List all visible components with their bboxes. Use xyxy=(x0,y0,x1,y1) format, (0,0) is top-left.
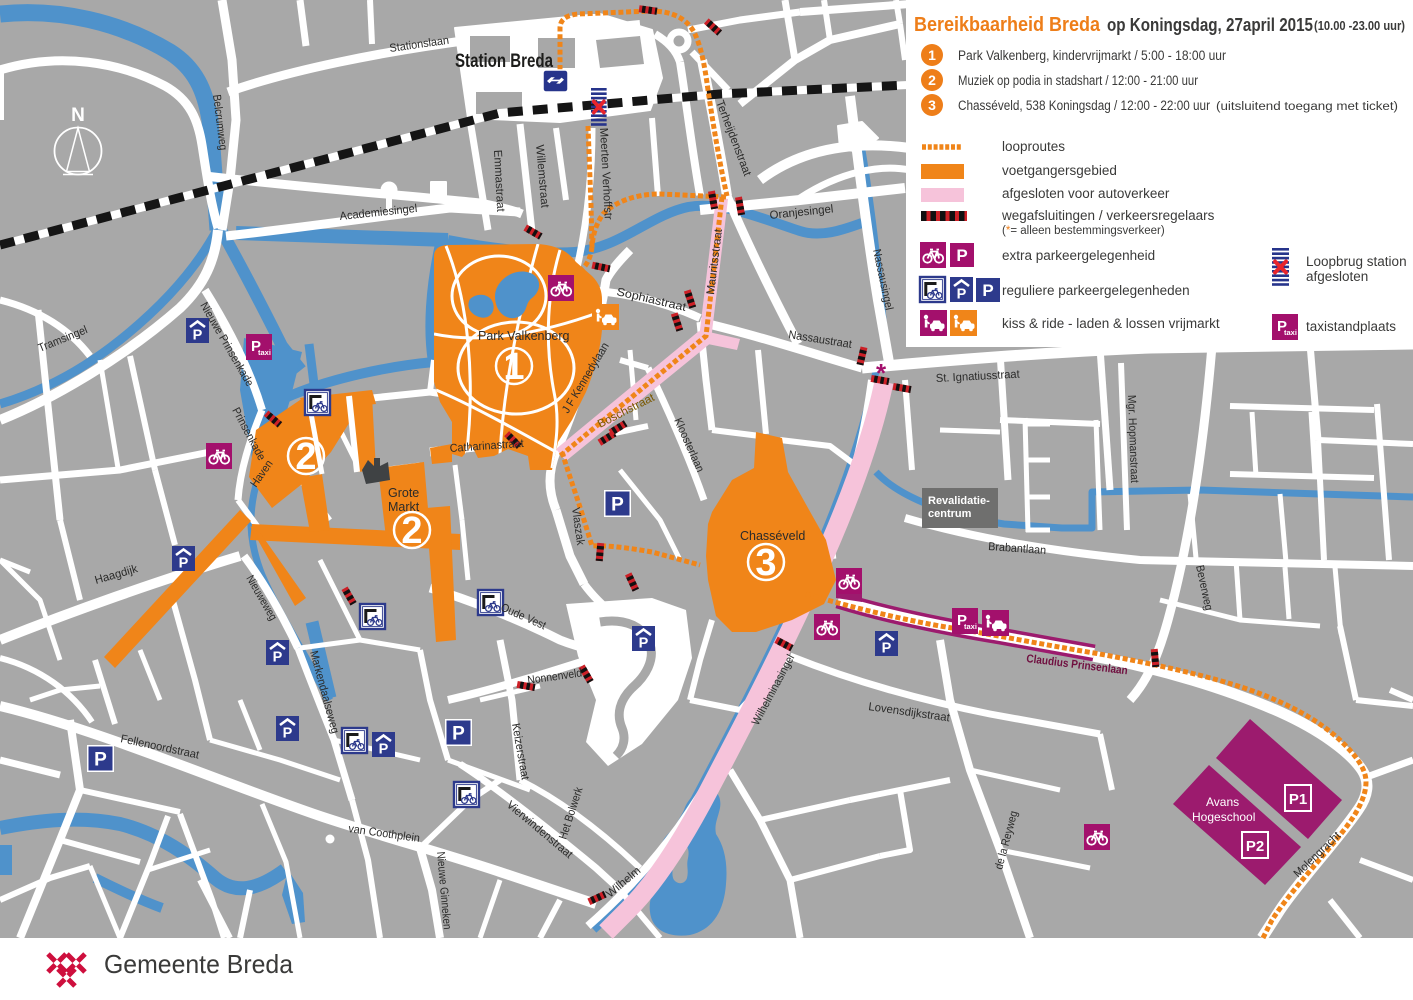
svg-text:Grote: Grote xyxy=(388,486,419,500)
svg-text:Avans: Avans xyxy=(1206,795,1239,809)
svg-text:P: P xyxy=(982,281,993,300)
svg-text:Muziek op podia in stadshart /: Muziek op podia in stadshart / 12:00 - 2… xyxy=(958,73,1198,88)
svg-text:Station Breda: Station Breda xyxy=(455,51,553,72)
svg-text:(*= alleen bestemmingsverkeer): (*= alleen bestemmingsverkeer) xyxy=(1002,225,1165,237)
svg-text:kiss & ride - laden & lossen: kiss & ride - laden & lossen vrijmarkt xyxy=(1002,316,1220,331)
svg-text:looproutes: looproutes xyxy=(1002,139,1065,154)
svg-text:Chasséveld, 538 Koningsdag / 1: Chasséveld, 538 Koningsdag / 12:00 - 22:… xyxy=(958,98,1210,113)
svg-text:Park Valkenberg, kindervrijmar: Park Valkenberg, kindervrijmarkt / 5:00 … xyxy=(958,48,1226,63)
svg-text:Markt: Markt xyxy=(388,500,420,514)
svg-text:*: * xyxy=(876,358,887,388)
svg-text:2: 2 xyxy=(401,510,422,552)
svg-text:1: 1 xyxy=(928,47,936,63)
svg-text:3: 3 xyxy=(755,542,776,584)
svg-text:extra parkeergelegenheid: extra parkeergelegenheid xyxy=(1002,248,1155,263)
svg-text:centrum: centrum xyxy=(928,508,972,520)
svg-text:wegafsluitingen / verkeersrege: wegafsluitingen / verkeersregelaars xyxy=(1001,208,1215,223)
svg-text:P1: P1 xyxy=(1289,791,1307,808)
svg-text:Park Valkenberg: Park Valkenberg xyxy=(478,329,570,343)
svg-text:reguliere parkeergelegenheden: reguliere parkeergelegenheden xyxy=(1002,283,1190,298)
svg-text:1: 1 xyxy=(503,346,524,388)
svg-text:N: N xyxy=(71,105,85,126)
svg-text:P2: P2 xyxy=(1246,838,1264,855)
svg-text:(10.00 -23.00 uur): (10.00 -23.00 uur) xyxy=(1314,19,1405,33)
svg-text:P: P xyxy=(956,246,967,265)
svg-text:2: 2 xyxy=(928,72,936,88)
svg-text:3: 3 xyxy=(928,97,936,113)
svg-text:Chasséveld: Chasséveld xyxy=(740,529,805,543)
svg-text:voetgangersgebied: voetgangersgebied xyxy=(1002,163,1117,178)
svg-text:Loopbrug station: Loopbrug station xyxy=(1306,254,1407,269)
svg-text:Gemeente Breda: Gemeente Breda xyxy=(104,949,294,979)
svg-text:(uitsluitend toegang met ticke: (uitsluitend toegang met ticket) xyxy=(1216,101,1398,113)
svg-text:op Koningsdag, 27april 2015: op Koningsdag, 27april 2015 xyxy=(1107,14,1313,35)
svg-text:Hogeschool: Hogeschool xyxy=(1192,810,1255,824)
svg-text:Bereikbaarheid Breda: Bereikbaarheid Breda xyxy=(914,13,1101,36)
svg-text:2: 2 xyxy=(295,436,316,478)
svg-text:afgesloten: afgesloten xyxy=(1306,269,1368,284)
svg-text:taxistandplaats: taxistandplaats xyxy=(1306,319,1396,334)
svg-text:Revalidatie-: Revalidatie- xyxy=(928,495,990,507)
svg-text:afgesloten voor autoverkeer: afgesloten voor autoverkeer xyxy=(1002,186,1170,201)
